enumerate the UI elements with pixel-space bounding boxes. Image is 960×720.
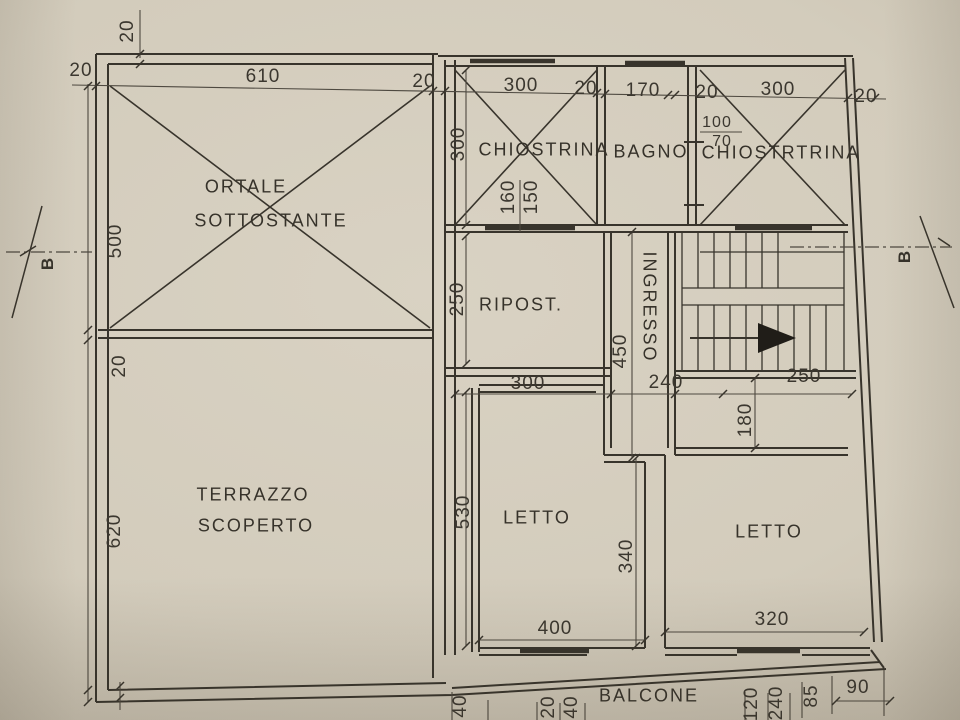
dim-top-170-bagno: 170 [626,80,661,102]
dim-bottom-85: 85 [801,684,823,707]
room-label-chiostrina: CHIOSTRINA [478,140,609,161]
section-mark-b-left: B [38,256,58,270]
room-label-ripost: RIPOST. [479,295,563,316]
room-label-terrazzo-line1: TERRAZZO [197,485,310,506]
dim-top-20-right: 20 [854,86,877,108]
dim-left-620: 620 [104,514,126,549]
dim-corridor-240: 240 [649,372,684,394]
room-label-terrazzo-line2: SCOPERTO [198,516,314,537]
dim-top-300-chiostrtrina: 300 [761,79,796,101]
dim-topleft-20-vertical: 20 [117,19,139,42]
dim-left-20: 20 [109,354,131,377]
dim-bottom-240: 240 [766,686,788,720]
dim-top-20-a: 20 [412,71,435,93]
dim-stair-250: 250 [787,366,822,388]
room-label-ortale-line2: SOTTOSTANTE [194,211,347,232]
staircase [682,232,844,371]
dim-letto-left-400: 400 [538,618,573,640]
room-label-letto-right: LETTO [735,522,803,543]
dim-left-500: 500 [105,224,127,259]
room-label-ingresso: INGRESSO [639,251,660,362]
dim-letto-left-340: 340 [616,539,638,574]
dim-ingresso-450: 450 [610,334,632,369]
dim-window-150: 150 [521,180,543,215]
dim-bottom-120: 120 [741,687,763,720]
dim-ripost-250: 250 [447,282,469,317]
dim-bagno-window-100: 100 [702,114,732,132]
floor-plan-linework [0,0,960,720]
dim-letto-left-530: 530 [453,495,475,530]
room-label-balcone: BALCONE [599,686,699,707]
dim-top-610: 610 [246,66,281,88]
room-label-bagno: BAGNO [613,142,688,163]
dim-bottom-90: 90 [846,677,869,699]
dim-top-20-left: 20 [69,60,92,82]
dim-top-300-chiostrina: 300 [504,75,539,97]
dim-top-20-c: 20 [695,82,718,104]
dim-letto-right-180: 180 [735,403,757,438]
floor-plan-scan: ORTALE SOTTOSTANTE CHIOSTRINA BAGNO CHIO… [0,0,960,720]
dim-bagno-window-70: 70 [712,133,732,151]
room-label-letto-left: LETTO [503,508,571,529]
void-cross-marks [110,70,845,328]
stair-direction-arrow-icon [758,323,796,353]
dim-bottom-20: 20 [538,695,560,718]
dim-chiostrina-300: 300 [448,127,470,162]
dim-bottom-40-b: 40 [561,695,583,718]
room-label-ortale-line1: ORTALE [205,177,287,198]
dim-ripost-300: 300 [511,373,546,395]
dim-top-20-b: 20 [574,78,597,100]
section-mark-b-right: B [895,249,915,263]
dim-bottom-40-a: 40 [450,694,472,717]
dim-window-160: 160 [498,180,520,215]
dim-letto-right-320: 320 [755,609,790,631]
